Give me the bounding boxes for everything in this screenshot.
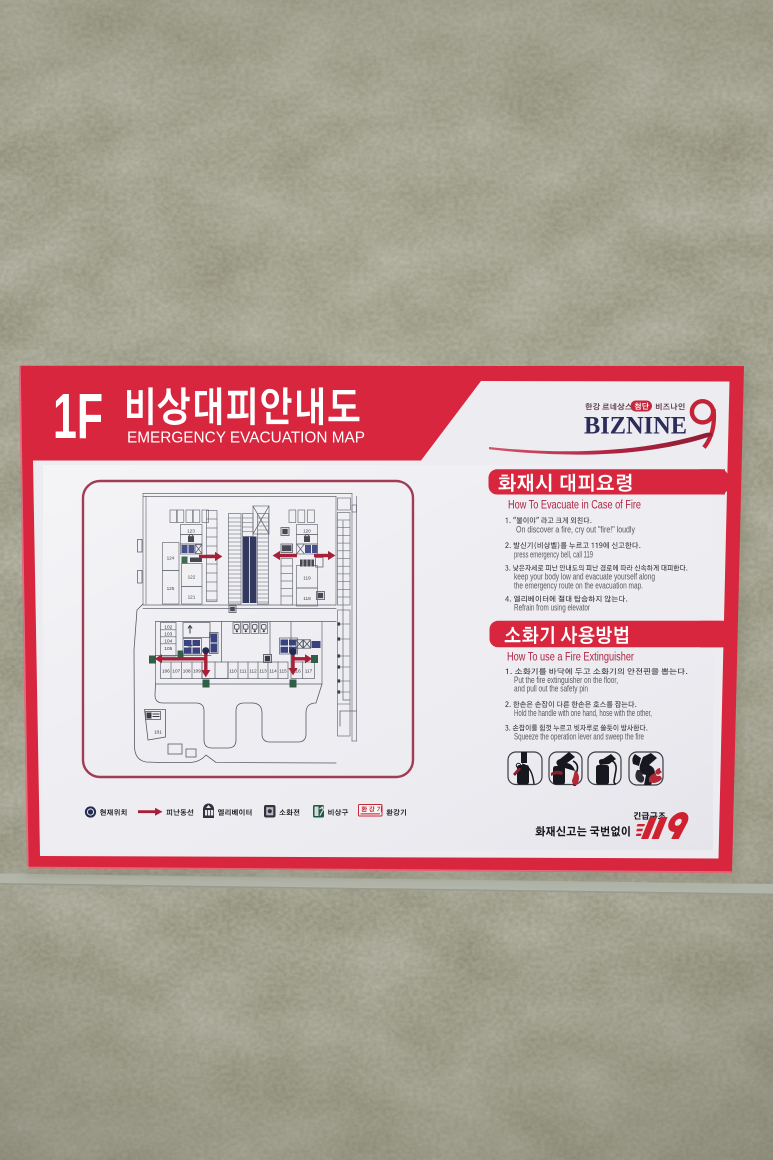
svg-text:101: 101	[154, 730, 162, 735]
svg-text:How To use a Fire Extinguisher: How To use a Fire Extinguisher	[507, 650, 634, 664]
svg-text:112: 112	[249, 669, 257, 674]
svg-text:103: 103	[164, 631, 172, 636]
svg-text:1F: 1F	[53, 380, 103, 452]
svg-text:125: 125	[167, 586, 175, 591]
svg-text:and pull out the safety pin: and pull out the safety pin	[514, 684, 588, 694]
svg-text:104: 104	[164, 638, 172, 643]
svg-text:the emergency route on the eva: the emergency route on the evacuation ma…	[514, 581, 643, 591]
svg-text:114: 114	[269, 669, 277, 674]
svg-text:108: 108	[183, 669, 191, 674]
svg-text:119: 119	[303, 576, 311, 581]
svg-text:102: 102	[164, 624, 172, 629]
svg-text:107: 107	[172, 669, 180, 674]
svg-text:111: 111	[239, 669, 247, 674]
svg-text:How To Evacuate in Case of Fir: How To Evacuate in Case of Fire	[508, 498, 641, 512]
svg-text:EMERGENCY EVACUATION MAP: EMERGENCY EVACUATION MAP	[127, 430, 365, 447]
svg-text:press emergency bell, call 119: press emergency bell, call 119	[514, 550, 593, 560]
svg-text:120: 120	[303, 528, 311, 533]
svg-text:110: 110	[229, 669, 237, 674]
svg-text:113: 113	[259, 669, 267, 674]
svg-text:109: 109	[193, 669, 201, 674]
svg-text:121: 121	[188, 595, 196, 600]
svg-text:BIZNINE: BIZNINE	[584, 411, 687, 440]
svg-text:On discover a fire, cry out "f: On discover a fire, cry out "fire!" loud…	[516, 525, 635, 535]
svg-text:115: 115	[279, 669, 287, 674]
svg-text:Hold the handle with one hand,: Hold the handle with one hand, hose with…	[514, 708, 652, 718]
svg-text:Squeeze the operation lever an: Squeeze the operation lever and sweep th…	[514, 732, 644, 742]
svg-text:124: 124	[167, 556, 175, 561]
svg-text:123: 123	[187, 528, 195, 533]
svg-text:117: 117	[305, 669, 313, 674]
svg-text:106: 106	[162, 669, 170, 674]
svg-text:118: 118	[303, 596, 311, 601]
svg-text:105: 105	[164, 646, 172, 651]
svg-text:Refrain from using elevator: Refrain from using elevator	[514, 603, 590, 613]
svg-text:122: 122	[188, 575, 196, 580]
